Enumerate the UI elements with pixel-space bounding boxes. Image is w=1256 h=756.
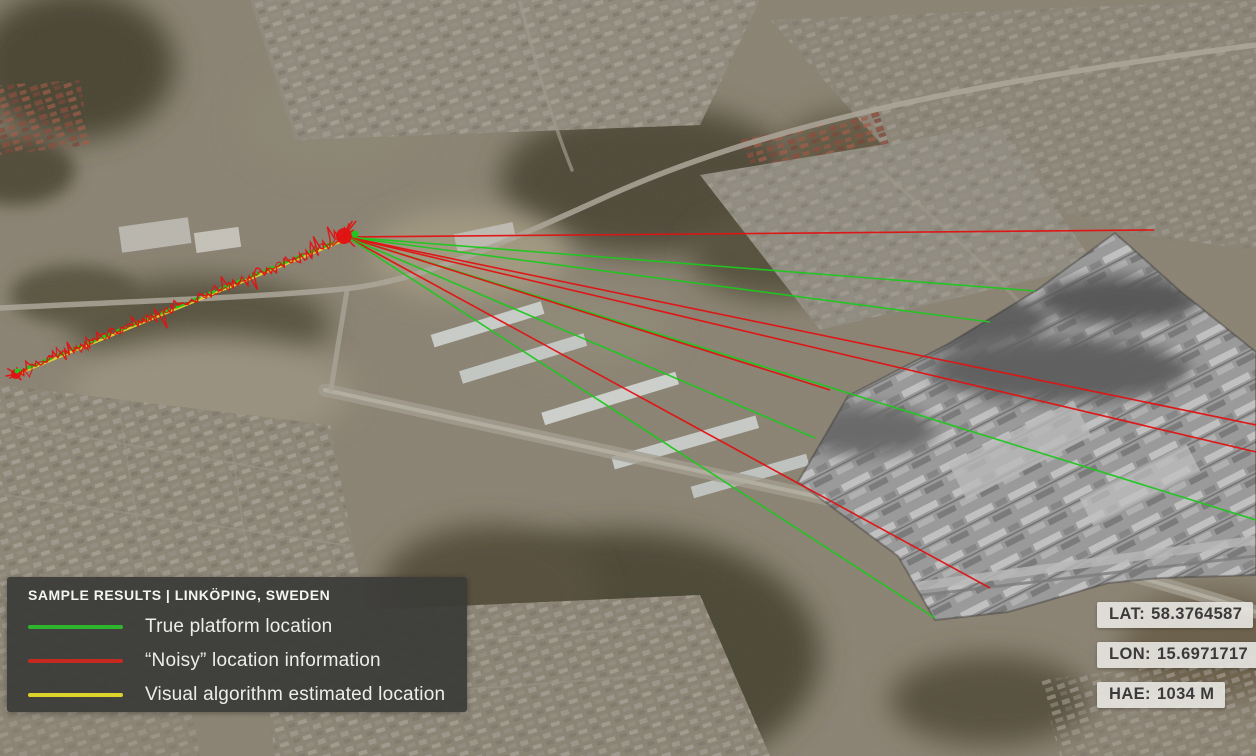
telemetry-readout: LAT:58.3764587 LON:15.6971717 HAE:1034 M (1097, 602, 1256, 708)
legend-item-noisy-location: “Noisy” location information (28, 644, 467, 678)
legend-label: “Noisy” location information (145, 650, 381, 672)
green-bearing-ray (347, 237, 935, 618)
latitude-label: LAT: (1109, 605, 1145, 623)
platform-position-dot (15, 369, 20, 374)
red-line-swatch (28, 659, 123, 663)
red-bearing-ray (347, 237, 1256, 452)
green-line-swatch (28, 625, 123, 629)
altitude-value: 1034 M (1157, 685, 1214, 703)
red-bearing-ray (347, 237, 990, 588)
platform-position-dot (352, 231, 359, 238)
legend-label: Visual algorithm estimated location (145, 684, 445, 706)
altitude-label: HAE: (1109, 685, 1151, 703)
legend-label: True platform location (145, 616, 332, 638)
latitude-value: 58.3764587 (1151, 605, 1242, 623)
latitude-badge: LAT:58.3764587 (1097, 602, 1253, 628)
legend-item-estimated-location: Visual algorithm estimated location (28, 678, 467, 712)
longitude-value: 15.6971717 (1157, 645, 1248, 663)
legend-item-true-location: True platform location (28, 610, 467, 644)
legend-title: SAMPLE RESULTS | LINKÖPING, SWEDEN (28, 587, 467, 603)
altitude-badge: HAE:1034 M (1097, 682, 1225, 708)
red-bearing-ray (347, 237, 830, 390)
red-bearing-ray (347, 237, 1256, 425)
legend-panel: SAMPLE RESULTS | LINKÖPING, SWEDEN True … (7, 577, 467, 712)
estimated-location-line (15, 239, 347, 375)
longitude-label: LON: (1109, 645, 1151, 663)
yellow-line-swatch (28, 693, 123, 697)
longitude-badge: LON:15.6971717 (1097, 642, 1256, 668)
map-viewport[interactable]: SAMPLE RESULTS | LINKÖPING, SWEDEN True … (0, 0, 1256, 756)
red-bearing-ray (347, 230, 1154, 237)
